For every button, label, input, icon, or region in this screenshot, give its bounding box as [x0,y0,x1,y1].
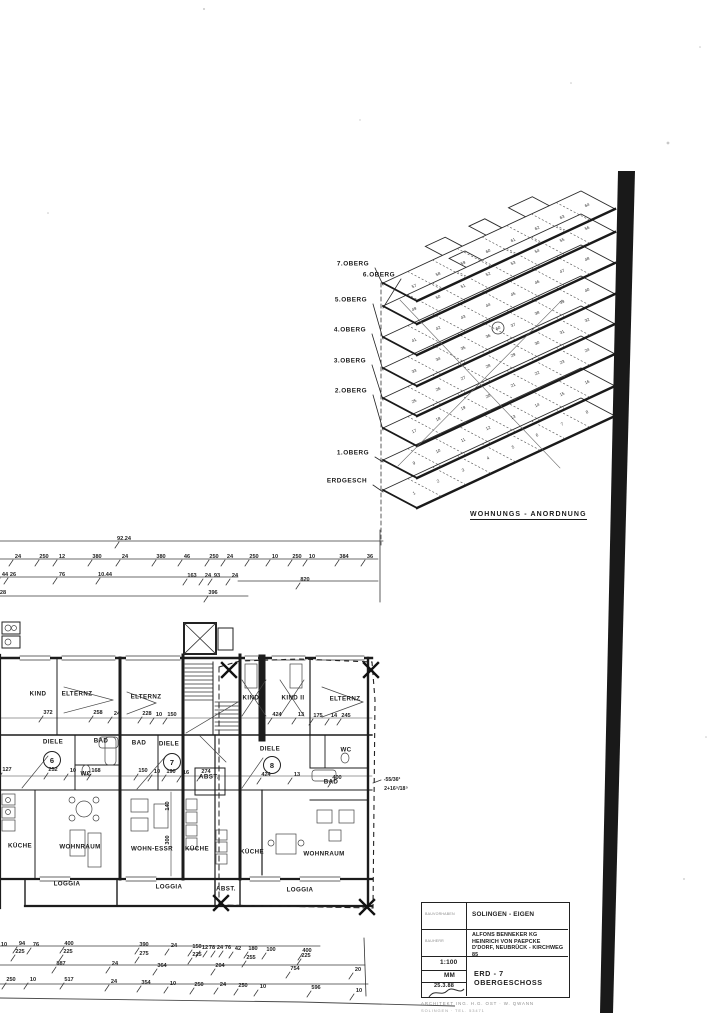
dimension-label-bottom: 76 [225,945,231,951]
dimension-label-bottom: 390 [139,942,148,948]
room-label: KIND II [281,695,304,702]
room-label: KÜCHE [185,846,209,853]
dimension-label-top: 24 [227,554,233,560]
dimension-label-mid: 245 [341,713,350,719]
dimension-label-bottom: 100 [266,947,275,953]
dimension-label-top: 250 [249,554,258,560]
floor-label: 6.OBERG [363,272,395,279]
dimension-label-bottom: 250 [6,977,15,983]
dimension-label-bottom: 10 [260,984,266,990]
dimension-label-mid: 24 [114,711,120,717]
dimension-label-bottom: 204 [215,963,224,969]
title-block: BAUVORHABEN SOLINGEN - EIGEN BAUHERR ALF… [421,902,570,998]
dimension-label-mid: 190 [166,769,175,775]
dimension-label-mid: 16 [183,770,189,776]
dimension-label-top: 12 [59,554,65,560]
dimension-label-bottom: 225 [192,952,201,958]
dimension-label-top: 44 [2,572,8,578]
room-label: DIELE [43,739,63,746]
dimension-label-top: 396 [208,590,217,596]
dimension-label-mid: 10 [154,769,160,775]
dimension-label-mid: 400 [332,775,341,781]
floor-label: 2.OBERG [335,388,367,395]
dimension-label-top: 24 [122,554,128,560]
client-line-1: ALFONS BENNEKER KG [472,932,569,939]
dimension-label-mid: 13 [298,712,304,718]
dimension-label-bottom: 76 [33,942,39,948]
room-label: KIND [30,691,47,698]
dimension-label-bottom: 275 [139,951,148,957]
dimension-label-bottom: 24 [111,979,117,985]
signature-squiggle [426,987,466,999]
room-label: KÜCHE [240,849,264,856]
architect-footer-line2: SOLINGEN · TEL. 53471 [421,1008,571,1013]
dimension-label-top: 76 [59,572,65,578]
dimension-label-bottom: 94 [19,941,25,947]
dimension-label-bottom: 255 [246,955,255,961]
plan-linework [0,0,717,1023]
floor-label: ERDGESCH [327,478,367,485]
dimension-label-bottom: 354 [141,980,150,986]
dimension-label-top: 46 [184,554,190,560]
dimension-label-mid: 13 [294,772,300,778]
room-label: LOGGIA [287,887,314,894]
annotation-note: 2+16⁵/18⁵ [384,786,408,792]
dimension-label-bottom: 250 [238,983,247,989]
floor-label: 4.OBERG [334,327,366,334]
dimension-label-bottom: 250 [194,982,203,988]
dimension-label-bottom: 225 [15,949,24,955]
dimension-label-top: 26 [10,572,16,578]
room-label: LOGGIA [156,884,183,891]
dimension-label-mid: 168 [91,768,100,774]
floor-label: 5.OBERG [335,297,367,304]
dimension-label-bottom: 10 [1,942,7,948]
dimension-label-mid: 10 [156,712,162,718]
client-name: ALFONS BENNEKER KG HEINRICH VON PAEPCKE … [472,932,569,958]
dimension-label-bottom: 364 [157,963,166,969]
dimension-label-bottom: 12 [202,945,208,951]
room-label: WOHNRAUM [303,851,344,858]
room-label: ELTERNZ [330,696,361,703]
dimension-label-mid: 252 [48,767,57,773]
dimension-label-top: 24 [15,554,21,560]
room-label: ELTERNZ [62,691,93,698]
dimension-label-bottom: 887 [56,961,65,967]
dimension-label-top: 250 [292,554,301,560]
scanned-floor-plan-sheet: WOHNUNGS - ANORDNUNG BAUVORHABEN SOLINGE… [0,0,717,1023]
floor-label: 3.OBERG [334,358,366,365]
room-label: DIELE [159,741,179,748]
client-field-label: BAUHERR [425,939,444,943]
dimension-label-bottom: 24 [171,943,177,949]
dimension-label-bottom: 180 [248,946,257,952]
dimension-label-mid: 228 [142,711,151,717]
dimension-label-top: 380 [156,554,165,560]
dimension-label-mid: 14 [331,713,337,719]
floor-label: 1.OBERG [337,450,369,457]
isometric-caption: WOHNUNGS - ANORDNUNG [470,511,587,520]
drawing-title: ERD - 7 OBERGESCHOSS [474,969,569,987]
dimension-label-top: 28 [0,590,6,596]
dimension-label-mid: 150 [167,712,176,718]
dimension-label-mid: 274 [201,769,210,775]
dimension-label-top: 36 [367,554,373,560]
dimension-label-bottom: 517 [64,977,73,983]
dimension-label-top: 93 [214,573,220,579]
room-label: KIND I [243,695,264,702]
dimension-label-bottom: 596 [311,985,320,991]
dimension-label-bottom: 10 [356,988,362,994]
dimension-label-top: 163 [187,573,196,579]
dimension-label-vertical: 140 [165,801,171,810]
dimension-label-bottom: 10 [170,981,176,987]
dimension-label-top: 10 [309,554,315,560]
dimension-label-mid: 175 [313,713,322,719]
dimension-label-bottom: 78 [209,945,215,951]
dimension-label-mid: 424 [272,712,281,718]
dimension-label-bottom: 24 [217,945,223,951]
dimension-label-top: 10.44 [98,572,112,578]
dimension-label-mid: 424 [261,772,270,778]
dimension-label-mid: 258 [93,710,102,716]
room-label: BAD [132,740,147,747]
dimension-label-mid: 150 [138,768,147,774]
scale-value: 1:100 [440,959,457,966]
floor-label: 7.OBERG [337,261,369,268]
architect-footer-line1: ARCHITEKT ING. H.G. OST · W. QWANN [421,1001,571,1006]
room-label: WOHNRAUM [59,844,100,851]
room-label: KÜCHE [8,843,32,850]
dimension-label-top: 384 [339,554,348,560]
dimension-label-top: 10 [272,554,278,560]
dimension-label-vertical: 300 [165,835,171,844]
dimension-label-top: 92.24 [117,536,131,542]
dimension-label-bottom: 42 [235,946,241,952]
annotation-note: -55/36² [384,777,400,783]
dimension-label-top: 24 [232,573,238,579]
room-label: WC [80,771,91,778]
room-label: DIELE [260,746,280,753]
room-label: WC [340,747,351,754]
dimension-label-bottom: 400 [64,941,73,947]
dimension-label-mid: 10 [70,768,76,774]
dimension-label-top: 250 [209,554,218,560]
dimension-label-top: 380 [92,554,101,560]
dimension-label-bottom: 150 [192,944,201,950]
dimension-label-bottom: 20 [355,967,361,973]
room-label: ABST. [216,886,236,893]
dimension-label-top: 820 [300,577,309,583]
room-label: ELTERNZ [131,694,162,701]
project-name: SOLINGEN - EIGEN [472,911,534,918]
drawn-by-initials: MM [444,972,455,979]
dimension-label-bottom: 754 [290,966,299,972]
dimension-label-top: 250 [39,554,48,560]
project-field-label: BAUVORHABEN [425,912,455,916]
room-label: BAD [94,738,109,745]
room-label: LOGGIA [54,881,81,888]
dimension-label-bottom: 225 [301,953,310,959]
room-label: WOHN-ESSR [131,846,173,853]
dimension-label-bottom: 10 [30,977,36,983]
client-line-3: D'DORF, NEUBRÜCK - KIRCHWEG 85 [472,945,569,958]
dimension-label-mid: 372 [43,710,52,716]
dimension-label-bottom: 225 [63,949,72,955]
dimension-label-mid: 127 [2,767,11,773]
dimension-label-top: 24 [205,573,211,579]
dimension-label-bottom: 24 [220,982,226,988]
dimension-label-bottom: 24 [112,961,118,967]
